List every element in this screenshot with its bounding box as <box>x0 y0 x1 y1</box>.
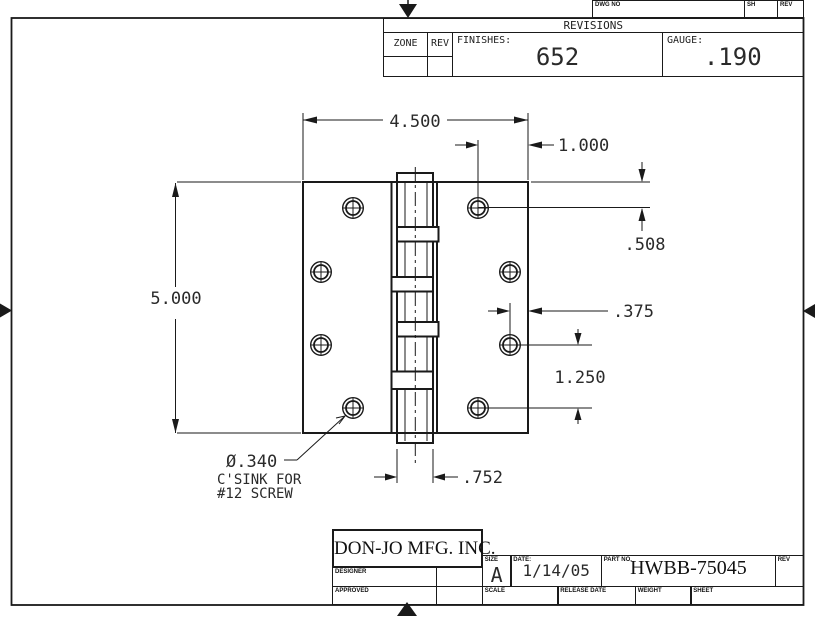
bearing-ring <box>392 372 434 390</box>
rev-column-header: REV <box>428 33 452 57</box>
dim-text-hole-spacing: 1.250 <box>554 368 605 388</box>
screw-hole <box>500 335 521 356</box>
zone-column-header: ZONE <box>384 33 427 57</box>
release-date-cell: RELEASE DATE <box>557 586 636 605</box>
revisions-title: REVISIONS <box>384 19 803 34</box>
screw-hole <box>500 262 521 283</box>
designer-label: DESIGNER <box>333 568 482 576</box>
part-no-cell: PART NO. HWBB-75045 <box>601 555 777 587</box>
designer-row: DESIGNER <box>332 567 483 587</box>
weight-label: WEIGHT <box>636 587 691 595</box>
dim-barrel-width: .752 <box>374 449 503 488</box>
dim-hole-col-inset: 1.000 <box>455 136 609 198</box>
sheet-label: SHEET <box>691 587 803 595</box>
release-date-label: RELEASE DATE <box>558 587 635 595</box>
bearing-ring <box>392 277 434 292</box>
screw-hole <box>468 398 489 419</box>
screw-hole <box>311 262 332 283</box>
dim-text-top-edge-to-hole: .508 <box>625 235 666 255</box>
company-name: DON-JO MFG. INC. <box>334 531 481 567</box>
approved-label: APPROVED <box>333 587 482 595</box>
revisions-table: REVISIONS ZONE REV FINISHES: 652 GAUGE: … <box>383 18 804 77</box>
center-mark-right-icon <box>803 304 815 318</box>
rev-label-titleblock: REV <box>776 556 803 564</box>
center-mark-left-icon <box>0 304 12 318</box>
screw-hole <box>311 335 332 356</box>
sh-label: SH <box>744 1 777 17</box>
scale-label: SCALE <box>483 587 558 595</box>
dwg-no-label: DWG NO <box>593 1 744 17</box>
dim-text-hole-col-inset: 1.000 <box>558 136 609 156</box>
bearing-ring <box>397 227 439 242</box>
dim-text-overall-height: 5.000 <box>150 289 201 309</box>
size-cell: SIZE A <box>482 555 512 587</box>
gauge-value: .190 <box>663 43 803 71</box>
bearing-ring <box>397 322 439 337</box>
dim-overall-height: 5.000 <box>150 182 301 433</box>
drawing-canvas: 4.500 1.000 .508 .375 <box>0 0 815 618</box>
dim-text-edge-to-hole: .375 <box>613 302 654 322</box>
dim-hole-spacing: 1.250 <box>554 329 605 424</box>
designer-row-divider <box>436 568 437 586</box>
weight-cell: WEIGHT <box>635 586 692 605</box>
csink-diameter-text: Ø.340 <box>226 452 277 472</box>
dim-top-edge-to-hole: .508 <box>531 162 665 255</box>
rev-label-strip: REV <box>777 1 803 17</box>
hinge-view <box>303 167 528 463</box>
date-value: 1/14/05 <box>511 561 601 580</box>
csink-note-line3: #12 SCREW <box>217 486 293 502</box>
date-cell: DATE: 1/14/05 <box>510 555 602 587</box>
dim-text-overall-width: 4.500 <box>389 112 440 132</box>
scale-cell: SCALE <box>482 586 559 605</box>
approved-row: APPROVED <box>332 586 483 605</box>
screw-hole <box>343 398 364 419</box>
size-value: A <box>483 563 511 587</box>
rev-cell: REV <box>775 555 804 587</box>
finishes-value: 652 <box>453 43 662 71</box>
sheet-cell: SHEET <box>690 586 804 605</box>
approved-row-divider <box>436 587 437 604</box>
dim-text-barrel-width: .752 <box>462 468 503 488</box>
dwg-number-strip: DWG NO SH REV <box>592 0 804 18</box>
center-mark-top-icon <box>399 0 417 18</box>
screw-hole <box>468 198 489 219</box>
screw-hole <box>343 198 364 219</box>
company-name-box: DON-JO MFG. INC. <box>332 529 483 568</box>
drawing-sheet: 4.500 1.000 .508 .375 <box>0 0 815 618</box>
